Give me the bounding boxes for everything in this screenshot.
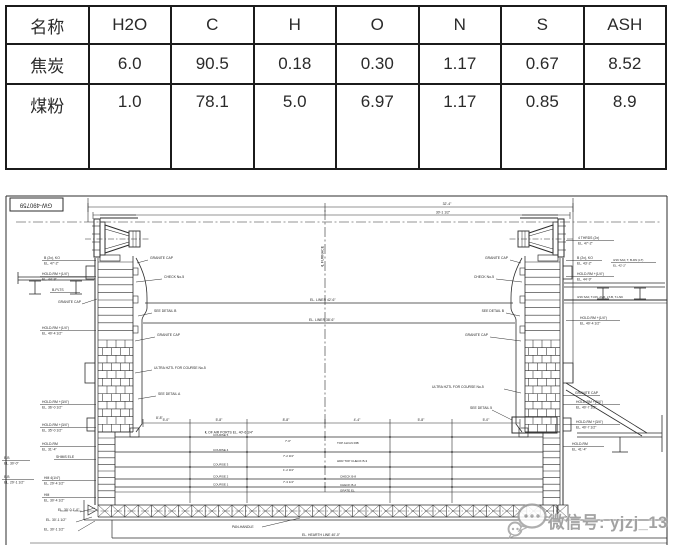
drawing-annotation: EL. LINER 42'-6" — [310, 298, 336, 302]
drawing-annotation: 4'-4" — [354, 418, 362, 422]
drawing-annotation: PAN-HANDLE — [232, 525, 254, 529]
column-header: S — [501, 6, 584, 44]
right-platform — [564, 283, 667, 303]
drawing-annotation: EL. 41'-4" — [572, 448, 587, 452]
value-cell: 90.5 — [171, 44, 254, 84]
drawing-annotation: EL. 30'-1 1/2" — [46, 518, 67, 522]
drawing-annotation: EL. 30'-1 1/2" — [44, 528, 65, 532]
value-cell: 1.0 — [89, 84, 172, 169]
drawing-annotation: EL. 42'-2" — [613, 264, 626, 268]
drawing-annotation: ℄ FURNACE — [321, 245, 325, 267]
drawing-annotation: GRANITE CAP — [485, 256, 509, 260]
drawing-annotation: HOLD-RM — [42, 442, 58, 446]
drawing-annotation: COURSE 4 — [213, 448, 229, 452]
column-header: H2O — [89, 6, 172, 44]
drawing-annotation: 5'-8" — [216, 418, 224, 422]
watermark-text: 微信号: yjzj_13 — [548, 509, 668, 533]
wechat-watermark: 微信号: yjzj_13 — [505, 501, 668, 541]
drawing-annotation: HOLD-RM +(3/4") — [576, 400, 603, 404]
drawing-annotation: EL. 35'-0 1/2" — [42, 429, 63, 433]
drawing-annotation: SEE DETAIL A — [158, 392, 181, 396]
drawing-annotation: ULTRA HZTL FOR COURSE No-5 — [432, 385, 484, 389]
value-cell: 6.97 — [336, 84, 419, 169]
table-row: 焦炭6.090.50.180.301.170.678.52 — [6, 44, 666, 84]
drawing-annotation: HOLD-RM +(3/4") — [42, 400, 69, 404]
drawing-annotation: EL. 40'-7 1/2" — [576, 426, 597, 430]
drawing-annotation: CHECK No-5 — [474, 275, 494, 279]
drawing-annotation: EL. 44'-9" — [42, 278, 57, 282]
drawing-annotation: EL. 30'-0-1'-0" — [58, 508, 80, 512]
value-cell: 0.30 — [336, 44, 419, 84]
drawing-annotation: HOLD-RM +(3/4") — [576, 420, 603, 424]
value-cell: 8.9 — [584, 84, 667, 169]
drawing-annotation: HOLD-RM +(1/4") — [42, 272, 69, 276]
value-cell: 0.18 — [254, 44, 337, 84]
drawing-annotation: GRANITE CAP — [575, 391, 599, 395]
left-burner-wall — [85, 215, 150, 505]
column-header: 名称 — [6, 6, 89, 44]
drawing-annotation: EL. 30'-4 1/2" — [44, 499, 65, 503]
drawing-annotation: B (2x), KO — [44, 256, 60, 260]
page: { "composition_table": { "headers": ["名称… — [0, 0, 674, 551]
drawing-annotation: CHECK No-5 — [164, 275, 184, 279]
drawing-annotation: GRANITE CAP — [465, 333, 489, 337]
drawing-annotation: EL. 47'-2" — [578, 242, 593, 246]
right-burner-wall — [508, 215, 573, 505]
drawing-annotation: B (2x), KO — [577, 256, 593, 260]
drawing-annotation: HOLD-RM +(1/4") — [42, 326, 69, 330]
drawing-annotation: COURSE 3 — [213, 463, 229, 467]
drawing-annotation: COURSE 2 — [213, 475, 229, 479]
drawing-annotation: SEE DETAIL 5 — [470, 406, 492, 410]
drawing-annotation: GRATE EL — [340, 489, 355, 493]
drawing-annotation: EL. 43'-2" — [577, 262, 592, 266]
drawing-annotation: HM — [44, 493, 49, 497]
value-cell: 8.52 — [584, 44, 667, 84]
drawing-annotation: 5'-8" — [418, 418, 426, 422]
drawing-annotation: EL. 44'-9" — [577, 278, 592, 282]
drawing-annotation: EL. HEARTH LINE 40'-0" — [302, 533, 341, 537]
drawing-annotation: GRANITE CAP — [58, 300, 82, 304]
value-cell: 0.85 — [501, 84, 584, 169]
drawing-annotation: 3/16 SAF, T, B-DN (LT) — [613, 258, 643, 262]
drawing-annotation: 5'-0" — [163, 418, 171, 422]
drawing-annotation: HDR TOP CHECK B-3 — [337, 459, 368, 463]
drawing-annotation: 7'-2 3/4" — [283, 454, 294, 458]
drawing-annotation: GRANITE CAP — [157, 333, 181, 337]
drawing-annotation: SEE DETAIL B — [154, 309, 177, 313]
drawing-annotation: GW-490759 — [19, 202, 52, 208]
table-row: 煤粉1.078.15.06.971.170.858.9 — [6, 84, 666, 169]
row-name-cell: 焦炭 — [6, 44, 89, 84]
engineering-drawing: GW-49075932'-4"30'-1 1/2"℄ FURNACEB (2x)… — [0, 190, 674, 551]
drawing-annotation: EL. 29'-4 1/2" — [44, 482, 65, 486]
drawing-annotation: 5'-0" — [483, 418, 491, 422]
row-name-cell: 煤粉 — [6, 84, 89, 169]
drawing-annotation: 7'-3 1/4" — [283, 480, 294, 484]
drawing-annotation: EL. LINER 38'-6" — [309, 318, 335, 322]
wechat-icon — [505, 501, 547, 541]
drawing-annotation: EL. 36'-0 1/2" — [42, 406, 63, 410]
drawing-annotation: COURSE 5 — [213, 433, 229, 437]
column-header: N — [419, 6, 502, 44]
drawing-annotation: B-PLTS — [52, 288, 64, 292]
table-header-row: 名称H2OCHONSASH — [6, 6, 666, 44]
composition-table-grid: 名称H2OCHONSASH焦炭6.090.50.180.301.170.678.… — [5, 5, 667, 170]
drawing-annotation: EL. 40'-4 1/2" — [42, 332, 63, 336]
drawing-annotation: SHIMS ELE — [56, 455, 75, 459]
drawing-annotation: GRANITE CAP — [150, 256, 174, 260]
value-cell: 1.17 — [419, 84, 502, 169]
drawing-annotation: 7'-0" — [285, 439, 291, 443]
drawing-annotation: 8'-8" — [283, 418, 291, 422]
drawing-annotation: EL. 47'-2" — [44, 262, 59, 266]
furnace-section-drawing: GW-49075932'-4"30'-1 1/2"℄ FURNACEB (2x)… — [0, 190, 674, 551]
drawing-annotation: EL. 29'-1 1/2" — [4, 481, 25, 485]
value-cell: 78.1 — [171, 84, 254, 169]
drawing-annotation: CHECK B-2 — [340, 483, 356, 487]
value-cell: 0.67 — [501, 44, 584, 84]
drawing-annotation: CHECK B-8 — [340, 475, 356, 479]
drawing-annotation: HOLD-RM — [572, 442, 588, 446]
course-lines — [115, 419, 543, 503]
drawing-annotation: COURSE 1 — [213, 483, 229, 487]
drawing-annotation: TOP ALIGN RIB — [337, 441, 359, 445]
drawing-annotation: 30'-1 1/2" — [436, 211, 451, 215]
drawing-annotation: EL. 31'-4" — [42, 448, 57, 452]
column-header: O — [336, 6, 419, 44]
drawing-annotation: 32'-4" — [443, 202, 452, 206]
drawing-annotation: B.B — [4, 456, 10, 460]
drawing-annotation: 3/16 SAF, T-DN, AVR, LT-B, T-LNK — [577, 295, 623, 299]
drawing-annotation: ULTRA HZTL FOR COURSE No-5 — [154, 366, 206, 370]
drawing-annotation: ℄ OF AIR PORTS EL. 40'-6 1/4" — [204, 431, 254, 435]
drawing-annotation: HOLD-RM +(1/4") — [580, 316, 607, 320]
column-header: C — [171, 6, 254, 44]
value-cell: 6.0 — [89, 44, 172, 84]
drawing-annotation: EL. 40'-7 1/2" — [576, 406, 597, 410]
drawing-annotation: 1'-2 3/4" — [283, 468, 294, 472]
drawing-annotation: 4 THRDS (2x) — [578, 236, 599, 240]
column-header: ASH — [584, 6, 667, 44]
drawing-annotation: EL. 40'-4 1/2" — [580, 322, 601, 326]
drawing-annotation: B.B — [4, 475, 10, 479]
drawing-annotation: HOLD-RM +(1/4") — [577, 272, 604, 276]
value-cell: 1.17 — [419, 44, 502, 84]
drawing-annotation: EL. 30'-0" — [4, 462, 19, 466]
column-header: H — [254, 6, 337, 44]
drawing-annotation: HOLD-RM +(3/4") — [42, 423, 69, 427]
composition-table: 名称H2OCHONSASH焦炭6.090.50.180.301.170.678.… — [5, 5, 667, 170]
value-cell: 5.0 — [254, 84, 337, 169]
drawing-annotation: SEE DETAIL B — [482, 309, 505, 313]
drawing-annotation: HM 4(1/4") — [44, 476, 60, 480]
